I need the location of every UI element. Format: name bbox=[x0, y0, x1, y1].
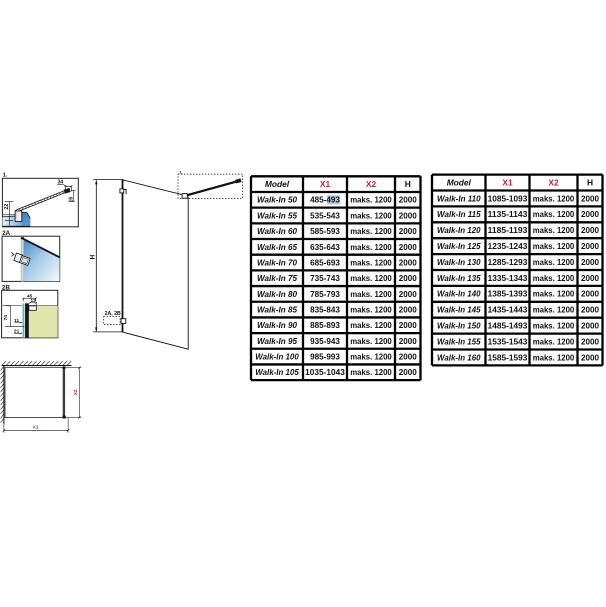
svg-text:2000: 2000 bbox=[581, 306, 599, 315]
svg-text:2000: 2000 bbox=[399, 353, 417, 362]
svg-text:maks. 1200: maks. 1200 bbox=[350, 274, 392, 283]
svg-text:2000: 2000 bbox=[399, 290, 417, 299]
svg-text:Walk-In 110: Walk-In 110 bbox=[437, 194, 481, 203]
svg-text:maks. 1200: maks. 1200 bbox=[533, 290, 575, 299]
svg-text:885-893: 885-893 bbox=[310, 321, 340, 330]
svg-text:985-993: 985-993 bbox=[310, 353, 340, 362]
svg-text:1085-1093: 1085-1093 bbox=[488, 194, 528, 203]
svg-text:maks. 1200: maks. 1200 bbox=[350, 290, 392, 299]
svg-text:1335-1343: 1335-1343 bbox=[488, 274, 528, 283]
svg-text:maks. 1200: maks. 1200 bbox=[533, 258, 575, 267]
svg-text:2000: 2000 bbox=[581, 290, 599, 299]
svg-text:maks. 1200: maks. 1200 bbox=[533, 322, 575, 331]
svg-text:Walk-In 75: Walk-In 75 bbox=[257, 274, 297, 283]
svg-text:2000: 2000 bbox=[581, 274, 599, 283]
svg-text:535-543: 535-543 bbox=[310, 211, 340, 220]
svg-text:2000: 2000 bbox=[581, 353, 599, 362]
svg-text:585-593: 585-593 bbox=[310, 227, 340, 236]
svg-text:X1: X1 bbox=[502, 178, 513, 188]
svg-text:Walk-In 160: Walk-In 160 bbox=[437, 353, 481, 362]
svg-text:2000: 2000 bbox=[399, 227, 417, 236]
svg-text:2000: 2000 bbox=[399, 196, 417, 205]
svg-text:Walk-In 80: Walk-In 80 bbox=[257, 290, 297, 299]
svg-text:X2: X2 bbox=[366, 179, 377, 189]
svg-text:12: 12 bbox=[30, 298, 36, 303]
svg-text:2000: 2000 bbox=[399, 243, 417, 252]
svg-text:maks. 1200: maks. 1200 bbox=[350, 258, 392, 267]
svg-text:1035-1043: 1035-1043 bbox=[305, 368, 345, 377]
svg-text:2000: 2000 bbox=[581, 337, 599, 346]
svg-text:maks. 1200: maks. 1200 bbox=[533, 210, 575, 219]
svg-text:X1: X1 bbox=[320, 179, 331, 189]
svg-text:Walk-In 60: Walk-In 60 bbox=[257, 227, 297, 236]
svg-text:maks. 1200: maks. 1200 bbox=[350, 196, 392, 205]
svg-text:785-793: 785-793 bbox=[310, 290, 340, 299]
svg-text:H: H bbox=[90, 254, 97, 259]
svg-text:935-943: 935-943 bbox=[310, 337, 340, 346]
svg-text:Walk-In 95: Walk-In 95 bbox=[257, 337, 297, 346]
svg-text:Walk-In 130: Walk-In 130 bbox=[437, 258, 481, 267]
svg-text:2000: 2000 bbox=[399, 258, 417, 267]
svg-text:Walk-In 85: Walk-In 85 bbox=[257, 306, 297, 315]
svg-text:2A, 2B: 2A, 2B bbox=[105, 311, 121, 317]
svg-text:maks. 1200: maks. 1200 bbox=[533, 274, 575, 283]
svg-text:X2: X2 bbox=[548, 178, 559, 188]
svg-text:485-493: 485-493 bbox=[310, 196, 340, 205]
svg-text:1435-1443: 1435-1443 bbox=[488, 306, 528, 315]
svg-text:16: 16 bbox=[69, 197, 75, 203]
svg-text:maks. 1200: maks. 1200 bbox=[350, 368, 392, 377]
svg-text:2000: 2000 bbox=[399, 306, 417, 315]
svg-text:X1: X1 bbox=[33, 425, 39, 430]
svg-text:maks. 1200: maks. 1200 bbox=[350, 306, 392, 315]
svg-text:74: 74 bbox=[3, 315, 9, 321]
svg-text:maks. 1200: maks. 1200 bbox=[350, 337, 392, 346]
svg-text:2000: 2000 bbox=[399, 368, 417, 377]
svg-text:Walk-In 150: Walk-In 150 bbox=[437, 322, 481, 331]
svg-text:1285-1293: 1285-1293 bbox=[488, 258, 528, 267]
svg-text:Walk-In 70: Walk-In 70 bbox=[257, 258, 297, 267]
svg-text:1385-1393: 1385-1393 bbox=[488, 290, 528, 299]
svg-text:2000: 2000 bbox=[399, 211, 417, 220]
svg-text:Walk-In 140: Walk-In 140 bbox=[437, 290, 481, 299]
svg-text:maks. 1200: maks. 1200 bbox=[350, 353, 392, 362]
svg-text:1135-1143: 1135-1143 bbox=[488, 210, 528, 219]
svg-text:2000: 2000 bbox=[581, 322, 599, 331]
svg-text:1585-1593: 1585-1593 bbox=[488, 353, 528, 362]
svg-text:11: 11 bbox=[14, 318, 19, 324]
svg-text:maks. 1200: maks. 1200 bbox=[533, 242, 575, 251]
svg-text:1535-1543: 1535-1543 bbox=[488, 337, 528, 346]
svg-text:maks. 1200: maks. 1200 bbox=[533, 194, 575, 203]
svg-text:maks. 1200: maks. 1200 bbox=[350, 243, 392, 252]
svg-text:Walk-In 120: Walk-In 120 bbox=[437, 226, 481, 235]
svg-text:maks. 1200: maks. 1200 bbox=[533, 353, 575, 362]
svg-text:22: 22 bbox=[4, 204, 10, 210]
svg-text:Walk-In 115: Walk-In 115 bbox=[437, 210, 481, 219]
svg-text:635-643: 635-643 bbox=[310, 243, 340, 252]
svg-text:1185-1193: 1185-1193 bbox=[488, 226, 528, 235]
svg-text:maks. 1200: maks. 1200 bbox=[533, 337, 575, 346]
svg-text:Walk-In 55: Walk-In 55 bbox=[257, 211, 297, 220]
svg-text:2000: 2000 bbox=[399, 274, 417, 283]
svg-text:Walk-In 125: Walk-In 125 bbox=[437, 242, 481, 251]
svg-text:1.: 1. bbox=[3, 173, 8, 179]
svg-text:Walk-In 145: Walk-In 145 bbox=[437, 306, 481, 315]
svg-text:Walk-In 90: Walk-In 90 bbox=[257, 321, 297, 330]
svg-text:735-743: 735-743 bbox=[310, 274, 340, 283]
svg-text:maks. 1200: maks. 1200 bbox=[350, 321, 392, 330]
svg-text:1.: 1. bbox=[179, 169, 182, 174]
svg-text:Walk-In 105: Walk-In 105 bbox=[255, 368, 299, 377]
svg-text:2000: 2000 bbox=[581, 226, 599, 235]
svg-text:maks. 1200: maks. 1200 bbox=[350, 227, 392, 236]
svg-text:maks. 1200: maks. 1200 bbox=[533, 226, 575, 235]
svg-text:1235-1243: 1235-1243 bbox=[488, 242, 528, 251]
svg-text:Walk-In 135: Walk-In 135 bbox=[437, 274, 481, 283]
svg-text:2000: 2000 bbox=[581, 210, 599, 219]
svg-text:H: H bbox=[587, 178, 593, 188]
svg-text:Walk-In 100: Walk-In 100 bbox=[255, 353, 299, 362]
svg-text:2000: 2000 bbox=[399, 337, 417, 346]
svg-text:X2: X2 bbox=[73, 389, 78, 395]
svg-text:H: H bbox=[405, 179, 411, 189]
svg-text:maks. 1200: maks. 1200 bbox=[350, 211, 392, 220]
svg-text:21: 21 bbox=[14, 329, 20, 335]
svg-text:Walk-In 50: Walk-In 50 bbox=[257, 196, 297, 205]
svg-text:835-843: 835-843 bbox=[310, 306, 340, 315]
svg-text:Model: Model bbox=[447, 178, 472, 188]
svg-text:Model: Model bbox=[265, 179, 290, 189]
svg-text:Walk-In 155: Walk-In 155 bbox=[437, 337, 481, 346]
svg-text:2000: 2000 bbox=[581, 258, 599, 267]
svg-text:2000: 2000 bbox=[399, 321, 417, 330]
svg-text:1485-1493: 1485-1493 bbox=[488, 322, 528, 331]
svg-text:2000: 2000 bbox=[581, 242, 599, 251]
svg-text:2000: 2000 bbox=[581, 194, 599, 203]
svg-text:Walk-In 65: Walk-In 65 bbox=[257, 243, 297, 252]
svg-text:maks. 1200: maks. 1200 bbox=[533, 306, 575, 315]
svg-text:685-693: 685-693 bbox=[310, 258, 340, 267]
